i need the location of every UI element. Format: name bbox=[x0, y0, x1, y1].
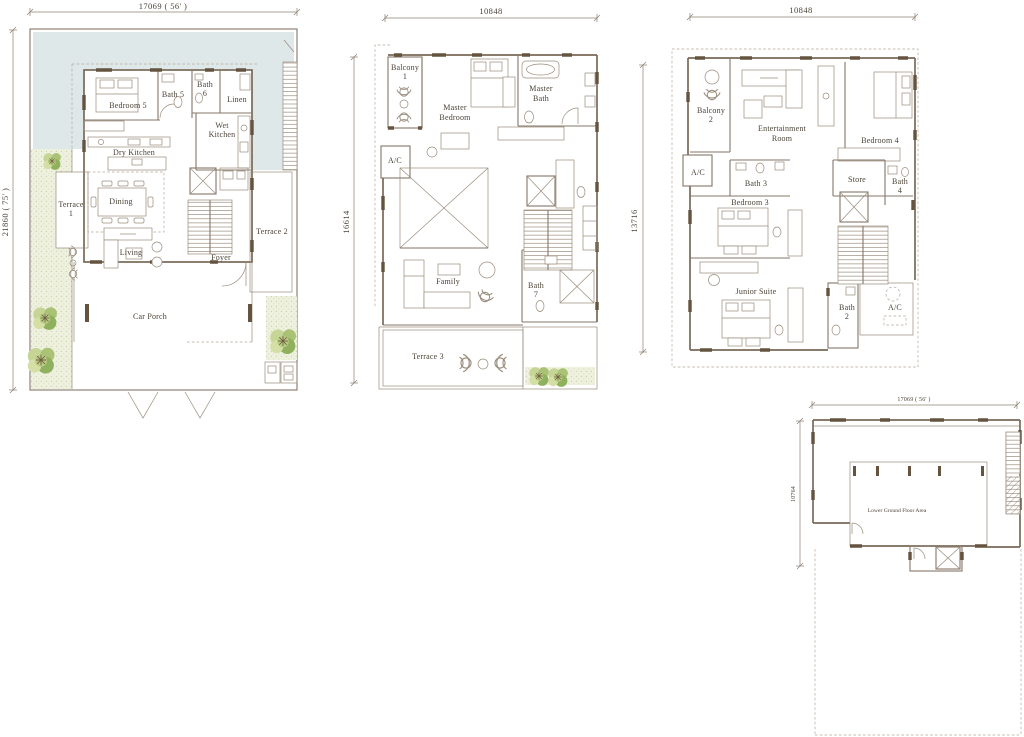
foyer-label: Foyer bbox=[211, 253, 231, 262]
svg-text:2: 2 bbox=[845, 312, 849, 321]
tree-icon bbox=[43, 153, 61, 170]
bath4-label: Bath bbox=[892, 177, 908, 186]
tree-icon bbox=[33, 307, 57, 330]
ground-floor-plan: 17069 ( 56' ) 21860 ( 75' ) bbox=[0, 1, 300, 418]
dim-top-label: 17069 ( 56' ) bbox=[139, 1, 188, 11]
double-volume-void bbox=[400, 168, 488, 248]
lower-ground-floor-plan: 17069 ( 56' ) 10764 bbox=[791, 396, 1021, 735]
stairs-icon bbox=[1006, 432, 1020, 514]
car-porch-mass bbox=[74, 262, 252, 342]
stairs-icon bbox=[188, 200, 232, 254]
junior-suite-label: Junior Suite bbox=[736, 287, 777, 296]
store-label: Store bbox=[848, 175, 866, 184]
terrace3-label: Terrace 3 bbox=[412, 352, 444, 361]
wet-kitchen-counter bbox=[238, 116, 250, 168]
dimension-top: 17069 ( 56' ) bbox=[27, 1, 300, 16]
lot-extension-dashed bbox=[815, 549, 1021, 735]
utility-rooms bbox=[265, 362, 297, 383]
bed-icon bbox=[471, 59, 515, 107]
dimension-top: 10848 bbox=[687, 5, 918, 21]
kitchenette bbox=[818, 66, 834, 126]
closet-shelves bbox=[583, 206, 597, 250]
svg-text:Bedroom: Bedroom bbox=[439, 113, 471, 122]
ac2-label: A/C bbox=[888, 303, 902, 312]
dimension-left: 10764 bbox=[791, 418, 804, 569]
svg-text:Room: Room bbox=[772, 134, 793, 143]
dimension-left: 21860 ( 75' ) bbox=[0, 27, 17, 393]
svg-text:1: 1 bbox=[69, 209, 73, 218]
lift-icon bbox=[527, 176, 555, 206]
bed-icon bbox=[874, 72, 912, 118]
second-floor-plan: 10848 bbox=[672, 5, 918, 367]
lift-lobby bbox=[910, 546, 962, 571]
svg-text:7: 7 bbox=[534, 290, 538, 299]
dining-label: Dining bbox=[109, 197, 132, 206]
dimension-top: 10848 bbox=[382, 6, 600, 22]
tree-icon bbox=[270, 329, 296, 354]
chair bbox=[427, 147, 437, 157]
dim-top-label: 17069 ( 56' ) bbox=[897, 396, 930, 403]
bath3-label: Bath 3 bbox=[745, 179, 767, 188]
terrace3-chairs bbox=[460, 354, 507, 371]
floor-plan-sheet: 17069 ( 56' ) 21860 ( 75' ) bbox=[0, 0, 1024, 737]
dim-left-label: 21860 ( 75' ) bbox=[0, 188, 10, 237]
door-arc bbox=[852, 523, 863, 534]
garden-patch bbox=[525, 367, 595, 387]
balcony1-chairs bbox=[397, 87, 411, 123]
walls bbox=[813, 420, 1020, 547]
entertainment-label: Entertainment bbox=[758, 124, 806, 133]
side-stair bbox=[283, 62, 297, 170]
stairs-icon bbox=[838, 226, 888, 284]
dimension-top: 17069 ( 56' ) bbox=[809, 396, 1020, 409]
svg-text:1: 1 bbox=[403, 72, 407, 81]
svg-text:2: 2 bbox=[709, 115, 713, 124]
master-bedroom-label: Master bbox=[443, 103, 467, 112]
bath6-label: Bath bbox=[197, 80, 213, 89]
balcony1-label: Balcony bbox=[391, 63, 419, 72]
car-porch-label: Car Porch bbox=[133, 312, 167, 321]
linen-label: Linen bbox=[227, 95, 247, 104]
wardrobe-hatch bbox=[556, 160, 574, 208]
dimension-left: 16614 bbox=[341, 54, 358, 386]
void-box bbox=[560, 270, 594, 303]
bedroom4-label: Bedroom 4 bbox=[861, 136, 899, 145]
family-label: Family bbox=[436, 277, 460, 286]
dry-kitchen-label: Dry Kitchen bbox=[113, 148, 155, 157]
svg-text:Kitchen: Kitchen bbox=[209, 130, 236, 139]
terrace1-chairs bbox=[68, 246, 77, 280]
bath7-label: Bath bbox=[528, 281, 544, 290]
terrace1-label: Terrace bbox=[58, 200, 84, 209]
tree-icon bbox=[28, 348, 55, 374]
dim-top-label: 10848 bbox=[479, 6, 502, 16]
dim-left-label: 10764 bbox=[791, 486, 797, 502]
dim-left-label: 16614 bbox=[341, 210, 351, 234]
svg-text:Bath: Bath bbox=[533, 94, 549, 103]
balcony2-label: Balcony bbox=[697, 106, 725, 115]
ac1-label: A/C bbox=[691, 168, 705, 177]
wall-fills bbox=[813, 420, 1020, 546]
floor-plans-canvas: 17069 ( 56' ) 21860 ( 75' ) bbox=[0, 0, 1024, 737]
bedroom3-label: Bedroom 3 bbox=[731, 198, 769, 207]
bath5-label: Bath 5 bbox=[162, 90, 184, 99]
svg-text:4: 4 bbox=[898, 186, 902, 195]
living-label: Living bbox=[120, 248, 143, 257]
bedroom5-label: Bedroom 5 bbox=[109, 101, 147, 110]
dresser bbox=[441, 133, 469, 149]
linen-shelves bbox=[240, 74, 250, 90]
master-bath-label: Master bbox=[529, 84, 553, 93]
driveway-gates bbox=[128, 392, 215, 418]
toilet bbox=[577, 187, 585, 198]
first-floor-plan: 10848 16614 13716 bbox=[341, 6, 647, 389]
wet-kitchen-label: Wet bbox=[215, 121, 229, 130]
dim-top-label: 10848 bbox=[789, 5, 812, 15]
terrace2-label: Terrace 2 bbox=[256, 227, 288, 236]
lower-ground-label: Lower Ground Floor Area bbox=[868, 508, 927, 514]
bath-floor-hatch bbox=[498, 127, 564, 140]
bath2-label: Bath bbox=[839, 303, 855, 312]
dimension-right: 13716 bbox=[629, 62, 647, 355]
ac-label: A/C bbox=[388, 156, 402, 165]
dim-right-label: 13716 bbox=[629, 209, 639, 232]
svg-text:6: 6 bbox=[203, 89, 207, 98]
